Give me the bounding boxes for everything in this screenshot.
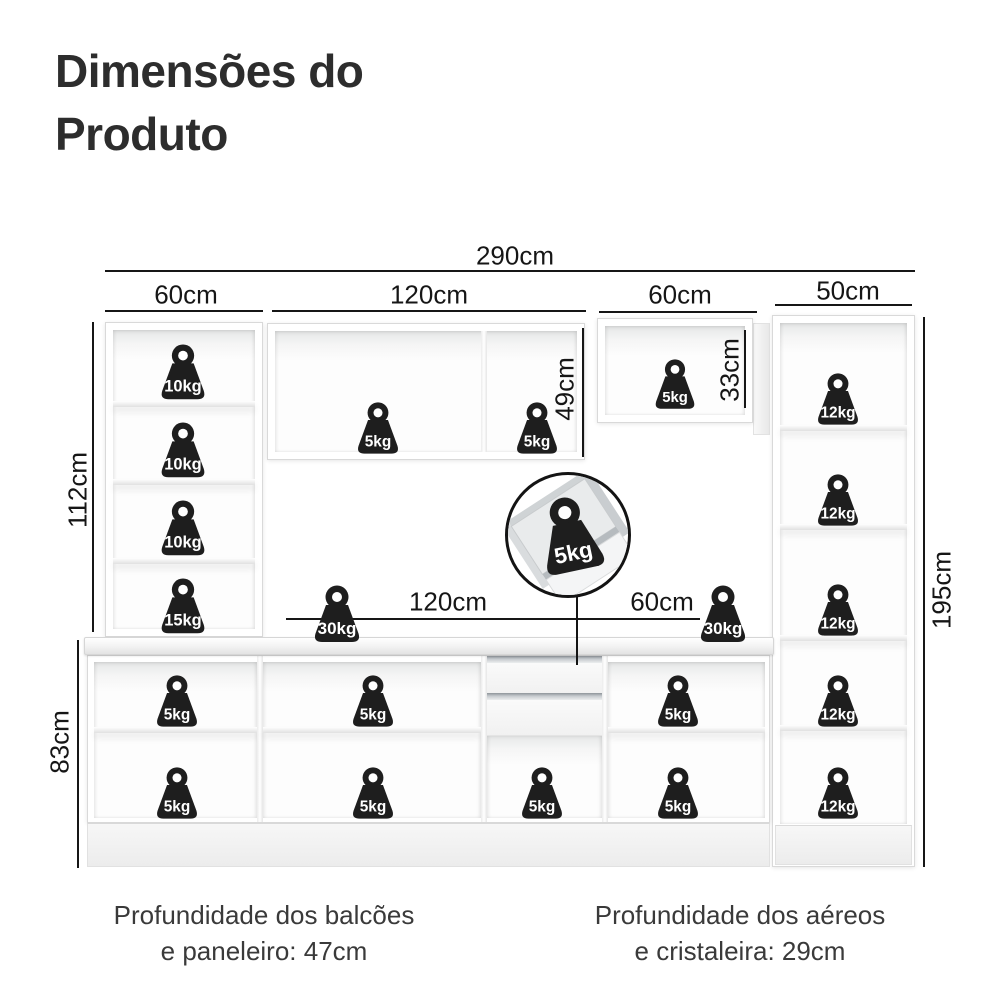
aereo-120-cabinet (267, 323, 585, 460)
dim-label-total-height: 195cm (927, 551, 958, 629)
balcao-1-interior (94, 662, 257, 818)
dim-label-aereo2-width: 60cm (648, 280, 712, 311)
caption-aereos-line1: Profundidade dos aéreos (595, 897, 886, 933)
dim-line-balcao-height (77, 640, 79, 868)
base-plinth (87, 823, 770, 867)
paneleiro-shelf (113, 479, 255, 485)
drawer-inset-circle: 5kg (505, 472, 631, 598)
dim-label-counter-left: 120cm (409, 587, 487, 618)
dim-label-cristaleira-width: 50cm (816, 276, 880, 307)
caption-balcoes-line2: e paneleiro: 47cm (114, 933, 415, 969)
dim-line-countertop (286, 618, 700, 620)
cristaleira-plinth (775, 825, 912, 865)
balcao-2-interior (263, 662, 481, 818)
balcao-3-shelf (608, 727, 765, 733)
page-title-line1: Dimensões do (55, 40, 363, 103)
svg-text:30kg: 30kg (318, 619, 357, 638)
svg-text:30kg: 30kg (704, 619, 743, 638)
drawer-face-2 (487, 700, 602, 736)
drawer-handle (487, 656, 602, 663)
paneleiro-shelf (113, 401, 255, 407)
inset-pointer-line (576, 596, 578, 665)
caption-aereos-depth: Profundidade dos aéreos e cristaleira: 2… (595, 897, 886, 970)
page-title: Dimensões do Produto (55, 40, 363, 166)
page-title-line2: Produto (55, 103, 363, 166)
paneleiro-shelf (113, 558, 255, 564)
drawer-handle (487, 693, 602, 700)
balcao-3-interior (608, 662, 765, 818)
drawer-stack (487, 656, 602, 735)
paneleiro-interior (113, 330, 255, 629)
cristaleira-shelf (780, 524, 907, 530)
aereo-120-interior (275, 331, 577, 452)
dim-label-aereo-height: 49cm (550, 357, 581, 421)
dim-label-aereo2-height: 33cm (715, 338, 746, 402)
caption-aereos-line2: e cristaleira: 29cm (595, 933, 886, 969)
dim-label-paneleiro-height: 112cm (63, 452, 94, 528)
countertop (84, 637, 774, 655)
balcao-2-shelf (263, 727, 481, 733)
product-dimensions-diagram: Dimensões do Produto (0, 0, 1000, 1000)
balcao-1-shelf (94, 727, 257, 733)
dim-label-paneleiro-width: 60cm (154, 280, 218, 311)
dim-label-balcao-height: 83cm (45, 710, 76, 774)
aereo-60-side-panel (753, 323, 770, 435)
caption-balcoes-line1: Profundidade dos balcões (114, 897, 415, 933)
drawer-face-1 (487, 663, 602, 694)
caption-balcoes-depth: Profundidade dos balcões e paneleiro: 47… (114, 897, 415, 970)
inset-weight-badge: 5kg (520, 487, 620, 587)
dim-label-total-width: 290cm (476, 241, 554, 272)
paneleiro-upper-cabinet (105, 322, 263, 637)
base-cabinets-body (87, 655, 770, 823)
dim-line-total-height (923, 317, 925, 867)
cristaleira-interior (780, 323, 907, 824)
dim-label-aereo-width: 120cm (390, 280, 468, 311)
cristaleira-cabinet (772, 315, 915, 867)
cristaleira-shelf (780, 725, 907, 731)
cristaleira-shelf (780, 635, 907, 641)
aereo-120-divider (481, 331, 487, 452)
dim-label-counter-right: 60cm (630, 587, 694, 618)
cristaleira-shelf (780, 425, 907, 431)
drawer-compartment-interior (487, 735, 602, 818)
dim-line-aereo-height (582, 328, 584, 457)
dim-line-aereo2-width (599, 311, 757, 313)
